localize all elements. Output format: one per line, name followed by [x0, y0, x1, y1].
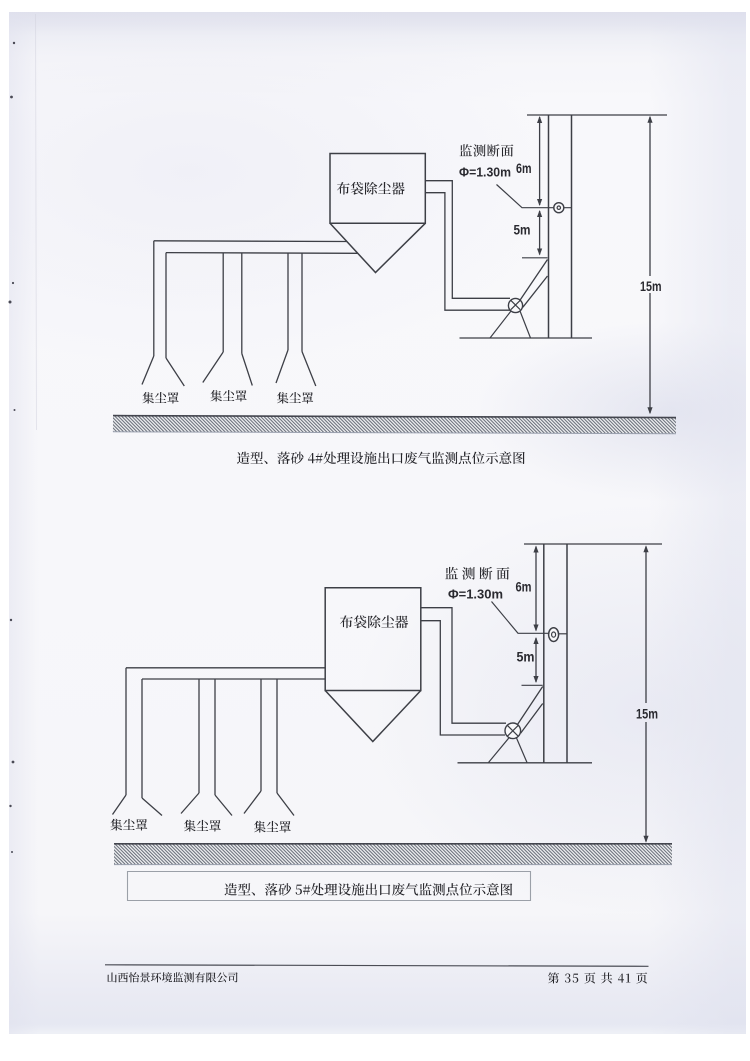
- svg-text:Φ=1.30m: Φ=1.30m: [459, 165, 511, 180]
- svg-text:5m: 5m: [517, 650, 535, 665]
- svg-text:15m: 15m: [636, 706, 658, 722]
- svg-text:6m: 6m: [516, 580, 532, 595]
- svg-text:15m: 15m: [640, 278, 662, 294]
- svg-text:Φ=1.30m: Φ=1.30m: [448, 587, 503, 602]
- svg-text:5m: 5m: [514, 223, 531, 238]
- svg-text:6m: 6m: [516, 161, 532, 176]
